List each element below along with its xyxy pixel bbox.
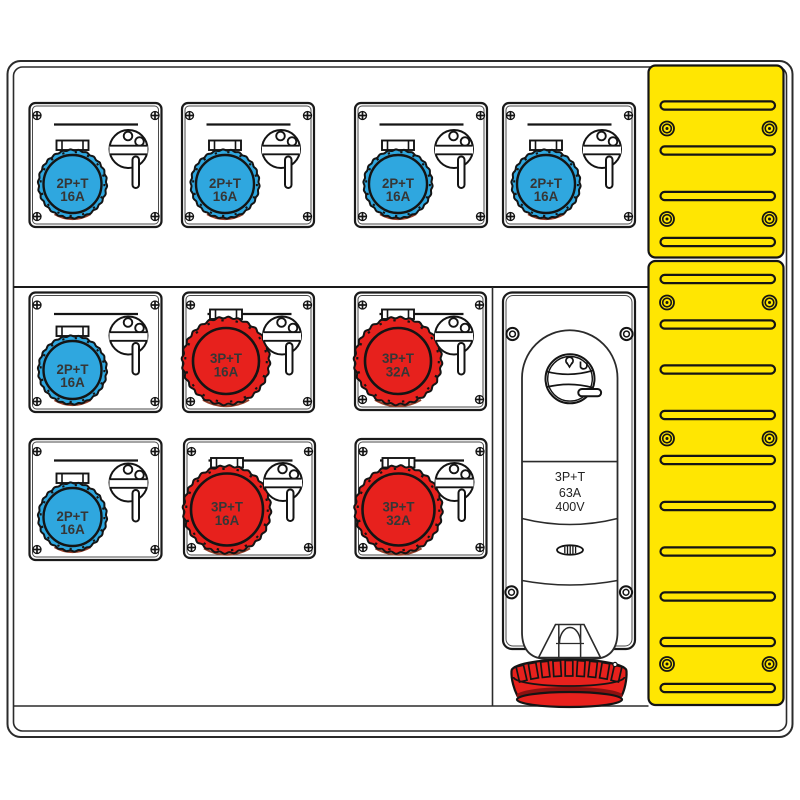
svg-text:16A: 16A [60, 522, 85, 538]
svg-text:16A: 16A [213, 189, 238, 205]
svg-text:16A: 16A [534, 189, 559, 205]
svg-text:16A: 16A [386, 189, 411, 205]
svg-text:3P+T: 3P+T [555, 470, 586, 484]
svg-text:16A: 16A [214, 365, 239, 381]
svg-text:32A: 32A [386, 513, 411, 529]
svg-text:63A: 63A [559, 486, 582, 500]
svg-text:16A: 16A [60, 375, 85, 391]
svg-text:400V: 400V [555, 500, 585, 514]
svg-text:16A: 16A [215, 513, 240, 529]
svg-text:32A: 32A [386, 365, 411, 381]
svg-text:16A: 16A [60, 189, 85, 205]
